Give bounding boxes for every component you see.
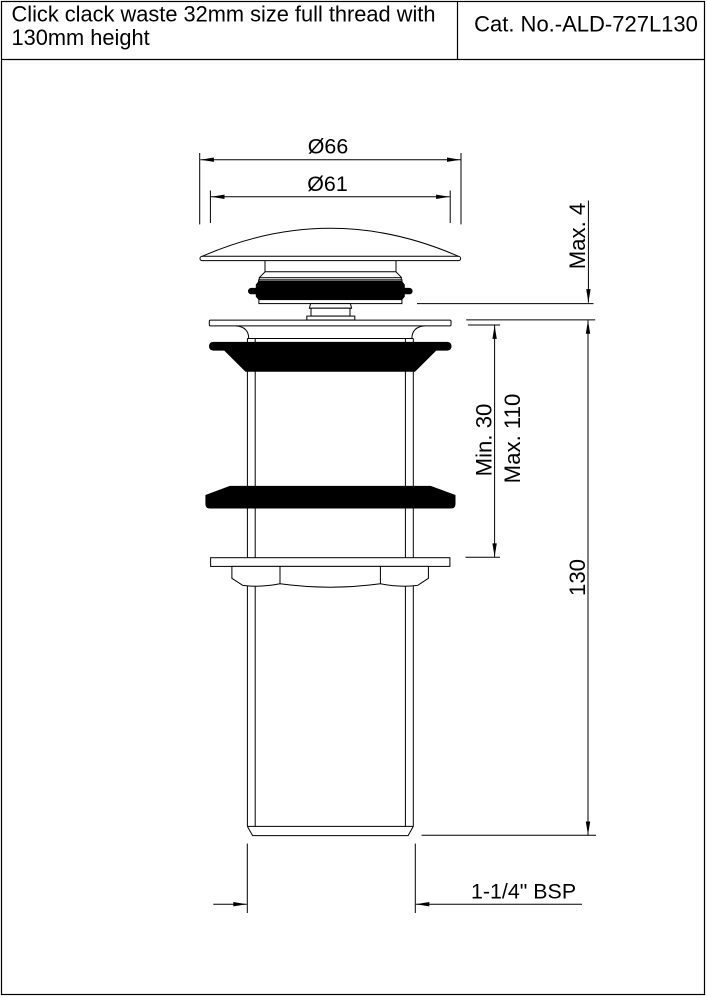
svg-text:Ø66: Ø66 [308,135,348,159]
svg-text:Ø61: Ø61 [307,172,347,196]
svg-text:Max. 4: Max. 4 [565,203,590,270]
svg-text:Cat. No.-ALD-727L130: Cat. No.-ALD-727L130 [474,12,698,37]
svg-text:130mm height: 130mm height [12,25,150,50]
svg-text:130: 130 [565,559,590,596]
svg-text:Min. 30: Min. 30 [472,404,497,477]
svg-text:Max. 110: Max. 110 [500,394,525,484]
svg-text:1-1/4" BSP: 1-1/4" BSP [471,880,576,904]
svg-text:Click clack waste 32mm size fu: Click clack waste 32mm size full thread … [12,1,436,26]
